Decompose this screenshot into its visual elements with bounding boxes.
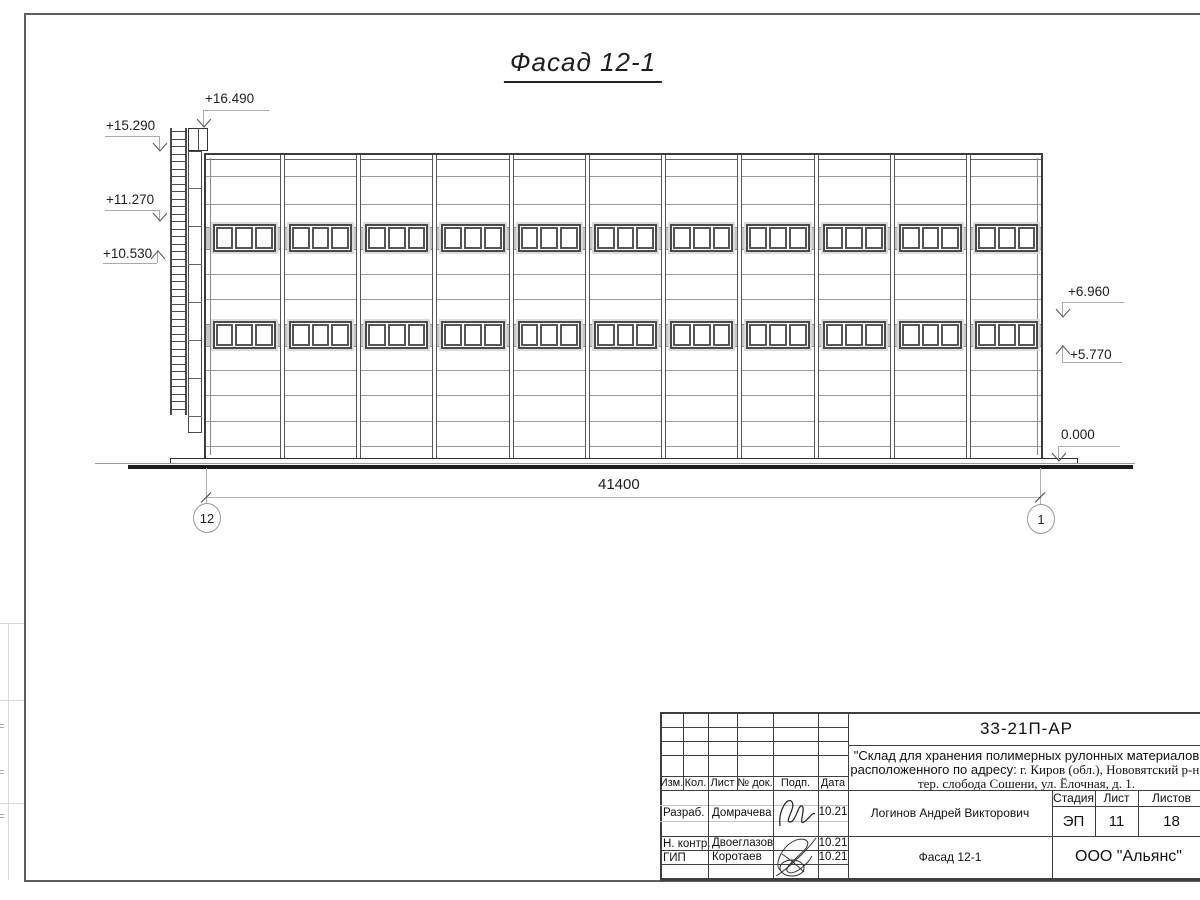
elevation-arrow xyxy=(152,142,168,152)
tb-line xyxy=(848,745,1200,746)
dimension-line xyxy=(206,497,1040,498)
elevation-arrow xyxy=(196,118,212,128)
window-pane xyxy=(845,227,863,249)
wall-mullion xyxy=(509,155,514,458)
elevation-arrow xyxy=(1051,452,1067,462)
panel-joint-line xyxy=(206,159,1041,160)
ladder-rung xyxy=(170,401,186,402)
elevation-arrow xyxy=(152,212,168,222)
ladder-rung xyxy=(170,326,186,327)
window-pane xyxy=(464,227,482,249)
window-pane xyxy=(998,227,1016,249)
tb-line xyxy=(660,878,1200,881)
window-pane xyxy=(636,324,654,346)
chief-name: Логинов Андрей Викторович xyxy=(848,790,1052,836)
ladder-cage-joint xyxy=(188,188,202,189)
rev-header-podp: Подп. xyxy=(773,776,818,790)
window-pane xyxy=(865,324,883,346)
ladder-rung xyxy=(170,394,186,395)
ribbon-window xyxy=(823,224,886,252)
wall-mullion xyxy=(966,155,971,458)
tb-line xyxy=(660,712,1200,714)
ribbon-window xyxy=(518,224,581,252)
ribbon-window xyxy=(975,224,1038,252)
ladder-rung xyxy=(170,296,186,297)
elevation-shelf-line xyxy=(105,136,159,137)
elevation-shelf-line xyxy=(103,263,157,264)
window-pane xyxy=(597,324,615,346)
role-gip: ГИП xyxy=(663,852,686,864)
project-line-1: "Склад для хранения полимерных рулонных … xyxy=(848,748,1200,763)
panel-joint-line xyxy=(206,204,1041,205)
tb-line xyxy=(660,712,662,880)
window-pane xyxy=(235,227,253,249)
project-line-2-serif: г. Киров (обл.), Нововятский р-н, xyxy=(1017,762,1200,777)
ribbon-window xyxy=(823,321,886,349)
name-ncontrol: Двоеглазов xyxy=(712,837,773,849)
window-pane xyxy=(769,324,787,346)
ladder-rung xyxy=(170,379,186,380)
window-pane xyxy=(292,227,310,249)
ladder-cage-joint xyxy=(188,264,202,265)
window-pane xyxy=(826,324,844,346)
drawing-name: Фасад 12-1 xyxy=(848,836,1052,878)
ladder-rung xyxy=(170,349,186,350)
ribbon-window xyxy=(899,224,962,252)
ribbon-window xyxy=(594,224,657,252)
panel-joint-line xyxy=(206,370,1041,371)
elevation-mark-label: +5.770 xyxy=(1070,347,1112,362)
ribbon-window xyxy=(365,321,428,349)
wall-mullion xyxy=(356,155,361,458)
elevation-shelf-line xyxy=(1062,362,1122,363)
window-pane xyxy=(331,324,349,346)
wall-mullion xyxy=(585,155,590,458)
window-pane xyxy=(464,324,482,346)
ribbon-window xyxy=(289,224,352,252)
window-pane xyxy=(713,227,731,249)
window-pane xyxy=(902,324,920,346)
stage-value: ЭП xyxy=(1052,806,1095,836)
window-pane xyxy=(673,227,691,249)
window-pane xyxy=(560,227,578,249)
ribbon-window xyxy=(670,321,733,349)
ladder-rung xyxy=(170,229,186,230)
ground-line xyxy=(128,465,1133,469)
ladder-rung xyxy=(170,139,186,140)
elevation-shelf-line xyxy=(1062,302,1124,303)
window-pane xyxy=(444,227,462,249)
elevation-arrow xyxy=(1055,308,1071,318)
window-pane xyxy=(521,227,539,249)
ladder-cage-joint xyxy=(188,226,202,227)
ladder-rung xyxy=(170,281,186,282)
window-pane xyxy=(636,227,654,249)
ladder-cage-joint xyxy=(188,340,202,341)
ladder-rung xyxy=(170,371,186,372)
window-pane xyxy=(978,227,996,249)
ladder-rung xyxy=(170,191,186,192)
elevation-arrow xyxy=(1055,345,1071,355)
ladder-rung xyxy=(170,319,186,320)
window-pane xyxy=(617,227,635,249)
window-pane xyxy=(1018,227,1036,249)
ribbon-window xyxy=(213,321,276,349)
window-pane xyxy=(312,227,330,249)
rev-header-list: Лист xyxy=(708,776,737,790)
drawing-sheet: Фасад 12-1 41400121+16.490+15.290+11.270… xyxy=(0,0,1200,900)
signature-gip xyxy=(772,830,820,880)
elevation-mark-label: +11.270 xyxy=(106,192,154,207)
elevation-mark-label: 0.000 xyxy=(1061,427,1095,442)
date-developer: 10.21 xyxy=(818,805,848,819)
ladder-rung xyxy=(170,259,186,260)
ladder-rung xyxy=(170,251,186,252)
dim-extension-line xyxy=(1040,468,1041,504)
name-gip: Коротаев xyxy=(712,851,762,863)
ladder-rung xyxy=(170,289,186,290)
axis-bubble-12: 12 xyxy=(193,503,221,533)
window-pane xyxy=(540,227,558,249)
company-name: ООО "Альянс" xyxy=(1052,836,1200,878)
sheet-number: 11 xyxy=(1095,806,1138,836)
window-pane xyxy=(408,227,426,249)
panel-joint-line xyxy=(206,274,1041,275)
ribbon-window xyxy=(899,321,962,349)
window-pane xyxy=(1018,324,1036,346)
window-pane xyxy=(845,324,863,346)
ladder-rung xyxy=(170,154,186,155)
ladder-rung xyxy=(170,199,186,200)
elevation-mark-label: +16.490 xyxy=(205,91,254,106)
window-pane xyxy=(216,227,234,249)
rev-header-izm: Изм. xyxy=(660,776,683,790)
window-pane xyxy=(789,227,807,249)
window-pane xyxy=(865,227,883,249)
panel-joint-line xyxy=(206,446,1041,447)
window-pane xyxy=(331,227,349,249)
ladder-rung xyxy=(170,169,186,170)
ladder-rung xyxy=(170,311,186,312)
ladder-rung xyxy=(170,236,186,237)
ribbon-window xyxy=(365,224,428,252)
panel-joint-line xyxy=(206,299,1041,300)
elevation-mark-label: +10.530 xyxy=(103,246,152,261)
elevation-mark-label: +6.960 xyxy=(1068,284,1110,299)
ribbon-window xyxy=(213,224,276,252)
sheet-header: Лист xyxy=(1095,790,1138,806)
sheets-total: 18 xyxy=(1138,806,1200,836)
window-pane xyxy=(521,324,539,346)
window-pane xyxy=(368,227,386,249)
window-pane xyxy=(713,324,731,346)
wall-mullion xyxy=(814,155,819,458)
elevation-shelf-line xyxy=(1058,446,1120,447)
wall-mullion xyxy=(432,155,437,458)
ladder-rung xyxy=(170,304,186,305)
ribbon-window xyxy=(518,321,581,349)
tb-line xyxy=(660,821,848,822)
ladder-cage xyxy=(188,151,202,433)
window-pane xyxy=(673,324,691,346)
ladder-rung xyxy=(170,176,186,177)
window-pane xyxy=(922,227,940,249)
ladder-rung xyxy=(170,146,186,147)
wall-edge-line xyxy=(1037,158,1038,455)
window-pane xyxy=(749,324,767,346)
window-pane xyxy=(941,324,959,346)
tb-line xyxy=(660,727,848,728)
window-pane xyxy=(408,324,426,346)
elevation-shelf-line xyxy=(203,110,269,111)
sheets-header: Листов xyxy=(1138,790,1200,806)
ladder-rung xyxy=(170,356,186,357)
window-pane xyxy=(998,324,1016,346)
wall-edge-line xyxy=(210,158,211,455)
ribbon-window xyxy=(746,321,809,349)
title-block: 33-21П-АР "Склад для хранения полимерных… xyxy=(660,712,1200,880)
ladder-rung xyxy=(170,184,186,185)
wall-mullion xyxy=(890,155,895,458)
window-pane xyxy=(693,324,711,346)
elevation-shelf-line xyxy=(105,210,159,211)
wall-mullion xyxy=(661,155,666,458)
dim-extension-line xyxy=(206,468,207,504)
window-pane xyxy=(255,227,273,249)
wall-mullion xyxy=(737,155,742,458)
dimension-value: 41400 xyxy=(598,476,640,493)
ground-extension-line xyxy=(95,463,1135,464)
ladder-rung xyxy=(170,206,186,207)
window-pane xyxy=(484,324,502,346)
stage-header: Стадия xyxy=(1052,790,1095,806)
window-pane xyxy=(902,227,920,249)
tb-line xyxy=(708,712,709,878)
ladder-rung xyxy=(170,221,186,222)
window-pane xyxy=(484,227,502,249)
elevation-mark-label: +15.290 xyxy=(106,118,155,133)
ladder-top-divider xyxy=(198,128,199,151)
window-pane xyxy=(540,324,558,346)
ladder-rung xyxy=(170,364,186,365)
window-pane xyxy=(789,324,807,346)
panel-joint-line xyxy=(206,176,1041,177)
window-pane xyxy=(388,227,406,249)
window-pane xyxy=(769,227,787,249)
window-pane xyxy=(368,324,386,346)
ladder-cage-joint xyxy=(188,302,202,303)
ladder-rung xyxy=(170,334,186,335)
window-pane xyxy=(255,324,273,346)
project-line-2-sans: расположенного по адресу: xyxy=(850,762,1016,777)
ladder-rung xyxy=(170,266,186,267)
doc-number: 33-21П-АР xyxy=(848,715,1200,743)
rev-header-kol: Кол. xyxy=(683,776,708,790)
ladder-rung xyxy=(170,214,186,215)
ladder-rung xyxy=(170,161,186,162)
ladder-rung xyxy=(170,131,186,132)
date-gip: 10.21 xyxy=(818,850,848,864)
date-ncontrol: 10.21 xyxy=(818,836,848,850)
ladder-rung xyxy=(170,274,186,275)
window-pane xyxy=(444,324,462,346)
window-pane xyxy=(216,324,234,346)
window-pane xyxy=(312,324,330,346)
tb-line xyxy=(660,755,848,756)
ladder-cage-joint xyxy=(188,378,202,379)
ribbon-window xyxy=(441,224,504,252)
panel-joint-line xyxy=(206,421,1041,422)
window-pane xyxy=(617,324,635,346)
ladder-rung xyxy=(170,244,186,245)
ribbon-window xyxy=(441,321,504,349)
ribbon-window xyxy=(746,224,809,252)
window-pane xyxy=(941,227,959,249)
rev-header-data: Дата xyxy=(818,776,848,790)
ribbon-window xyxy=(670,224,733,252)
role-developer: Разраб. xyxy=(663,807,704,819)
axis-bubble-1: 1 xyxy=(1027,504,1055,534)
tb-line xyxy=(660,741,848,742)
window-pane xyxy=(693,227,711,249)
ribbon-window xyxy=(594,321,657,349)
window-pane xyxy=(597,227,615,249)
window-pane xyxy=(560,324,578,346)
ladder-cage-joint xyxy=(188,416,202,417)
wall-mullion xyxy=(280,155,285,458)
ladder-rung xyxy=(170,341,186,342)
window-pane xyxy=(388,324,406,346)
window-pane xyxy=(826,227,844,249)
window-pane xyxy=(235,324,253,346)
ribbon-window xyxy=(289,321,352,349)
window-pane xyxy=(292,324,310,346)
ladder-rung xyxy=(170,409,186,410)
rev-header-doc: № док. xyxy=(737,776,773,790)
role-ncontrol: Н. контр. xyxy=(663,838,710,850)
panel-joint-line xyxy=(206,395,1041,396)
window-pane xyxy=(978,324,996,346)
window-pane xyxy=(922,324,940,346)
window-pane xyxy=(749,227,767,249)
building-facade xyxy=(204,153,1043,460)
ladder-rung xyxy=(170,386,186,387)
name-developer: Домрачева xyxy=(712,807,772,819)
ribbon-window xyxy=(975,321,1038,349)
